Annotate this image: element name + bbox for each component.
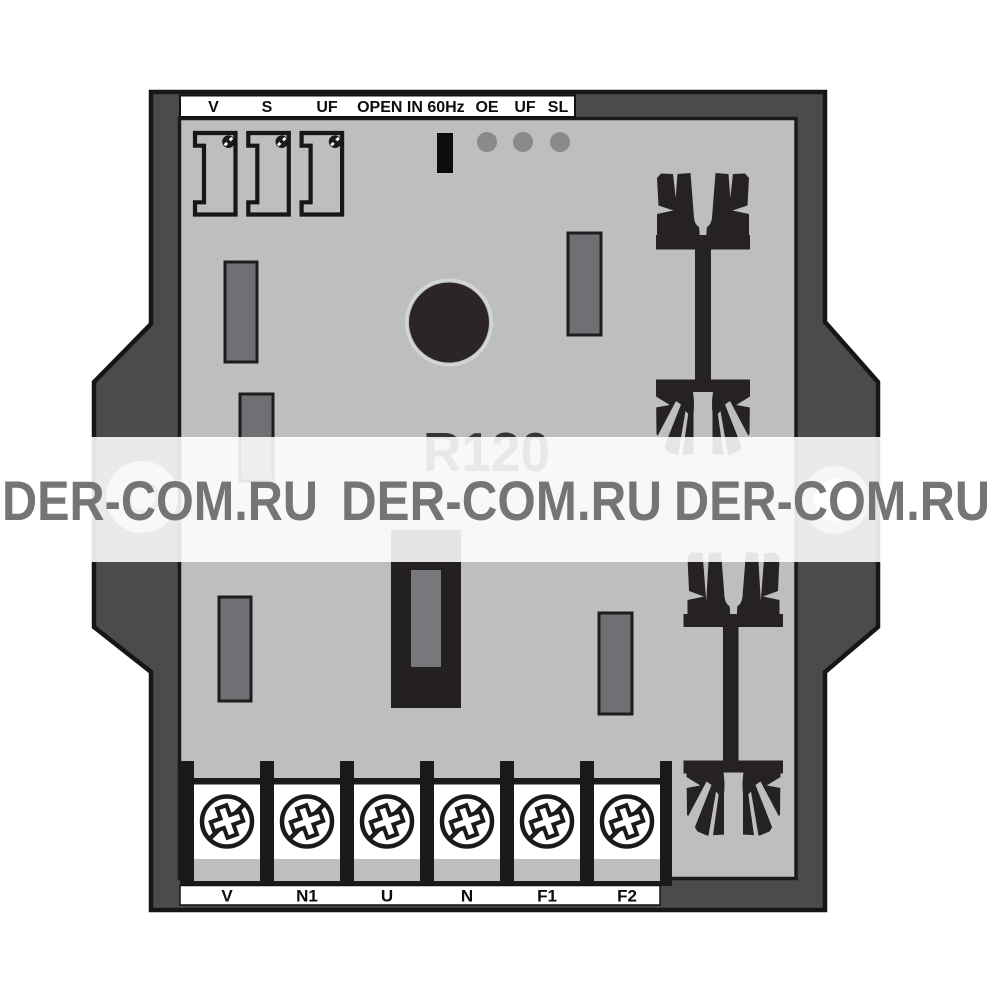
svg-text:UF: UF [514, 99, 536, 116]
svg-text:60Hz: 60Hz [427, 99, 464, 116]
svg-text:U: U [381, 887, 393, 906]
svg-text:OE: OE [475, 99, 498, 116]
svg-text:DER-COM.RU: DER-COM.RU [2, 469, 318, 532]
svg-text:N: N [461, 887, 473, 906]
svg-text:S: S [262, 99, 273, 116]
svg-text:V: V [208, 99, 219, 116]
svg-text:V: V [221, 887, 233, 906]
svg-text:UF: UF [316, 99, 338, 116]
svg-text:SL: SL [548, 99, 569, 116]
svg-text:N1: N1 [296, 887, 318, 906]
svg-text:DER-COM.RU: DER-COM.RU [674, 469, 990, 532]
svg-text:F1: F1 [537, 887, 557, 906]
svg-text:F2: F2 [617, 887, 637, 906]
svg-text:DER-COM.RU: DER-COM.RU [341, 469, 662, 532]
svg-text:OPEN IN: OPEN IN [357, 99, 423, 116]
